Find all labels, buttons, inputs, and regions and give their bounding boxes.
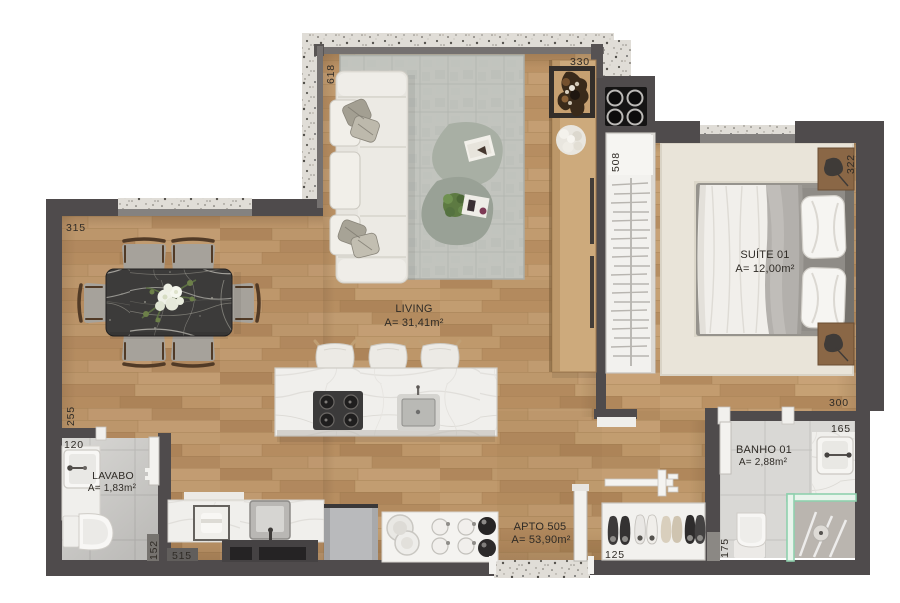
svg-text:315: 315 xyxy=(66,222,86,234)
svg-text:SUÍTE 01: SUÍTE 01 xyxy=(740,248,789,261)
svg-text:125: 125 xyxy=(605,549,625,561)
svg-text:BANHO 01: BANHO 01 xyxy=(736,444,792,456)
svg-text:A= 53,90m²: A= 53,90m² xyxy=(511,534,570,546)
svg-text:LIVING: LIVING xyxy=(395,303,432,315)
svg-text:165: 165 xyxy=(831,423,851,435)
svg-text:322: 322 xyxy=(845,154,857,174)
svg-text:APTO 505: APTO 505 xyxy=(514,521,567,533)
svg-text:A= 31,41m²: A= 31,41m² xyxy=(384,317,443,329)
svg-text:A= 12,00m²: A= 12,00m² xyxy=(735,263,794,275)
svg-text:152: 152 xyxy=(148,540,160,560)
svg-text:515: 515 xyxy=(172,550,192,562)
svg-text:300: 300 xyxy=(829,397,849,409)
svg-text:LAVABO: LAVABO xyxy=(92,470,134,482)
svg-text:A= 2,88m²: A= 2,88m² xyxy=(739,457,788,468)
svg-text:255: 255 xyxy=(65,406,77,426)
svg-text:330: 330 xyxy=(570,56,590,68)
svg-text:618: 618 xyxy=(325,64,337,84)
svg-text:A= 1,83m²: A= 1,83m² xyxy=(88,483,137,494)
svg-text:120: 120 xyxy=(64,439,84,451)
svg-text:175: 175 xyxy=(719,538,731,558)
svg-text:508: 508 xyxy=(610,152,622,172)
